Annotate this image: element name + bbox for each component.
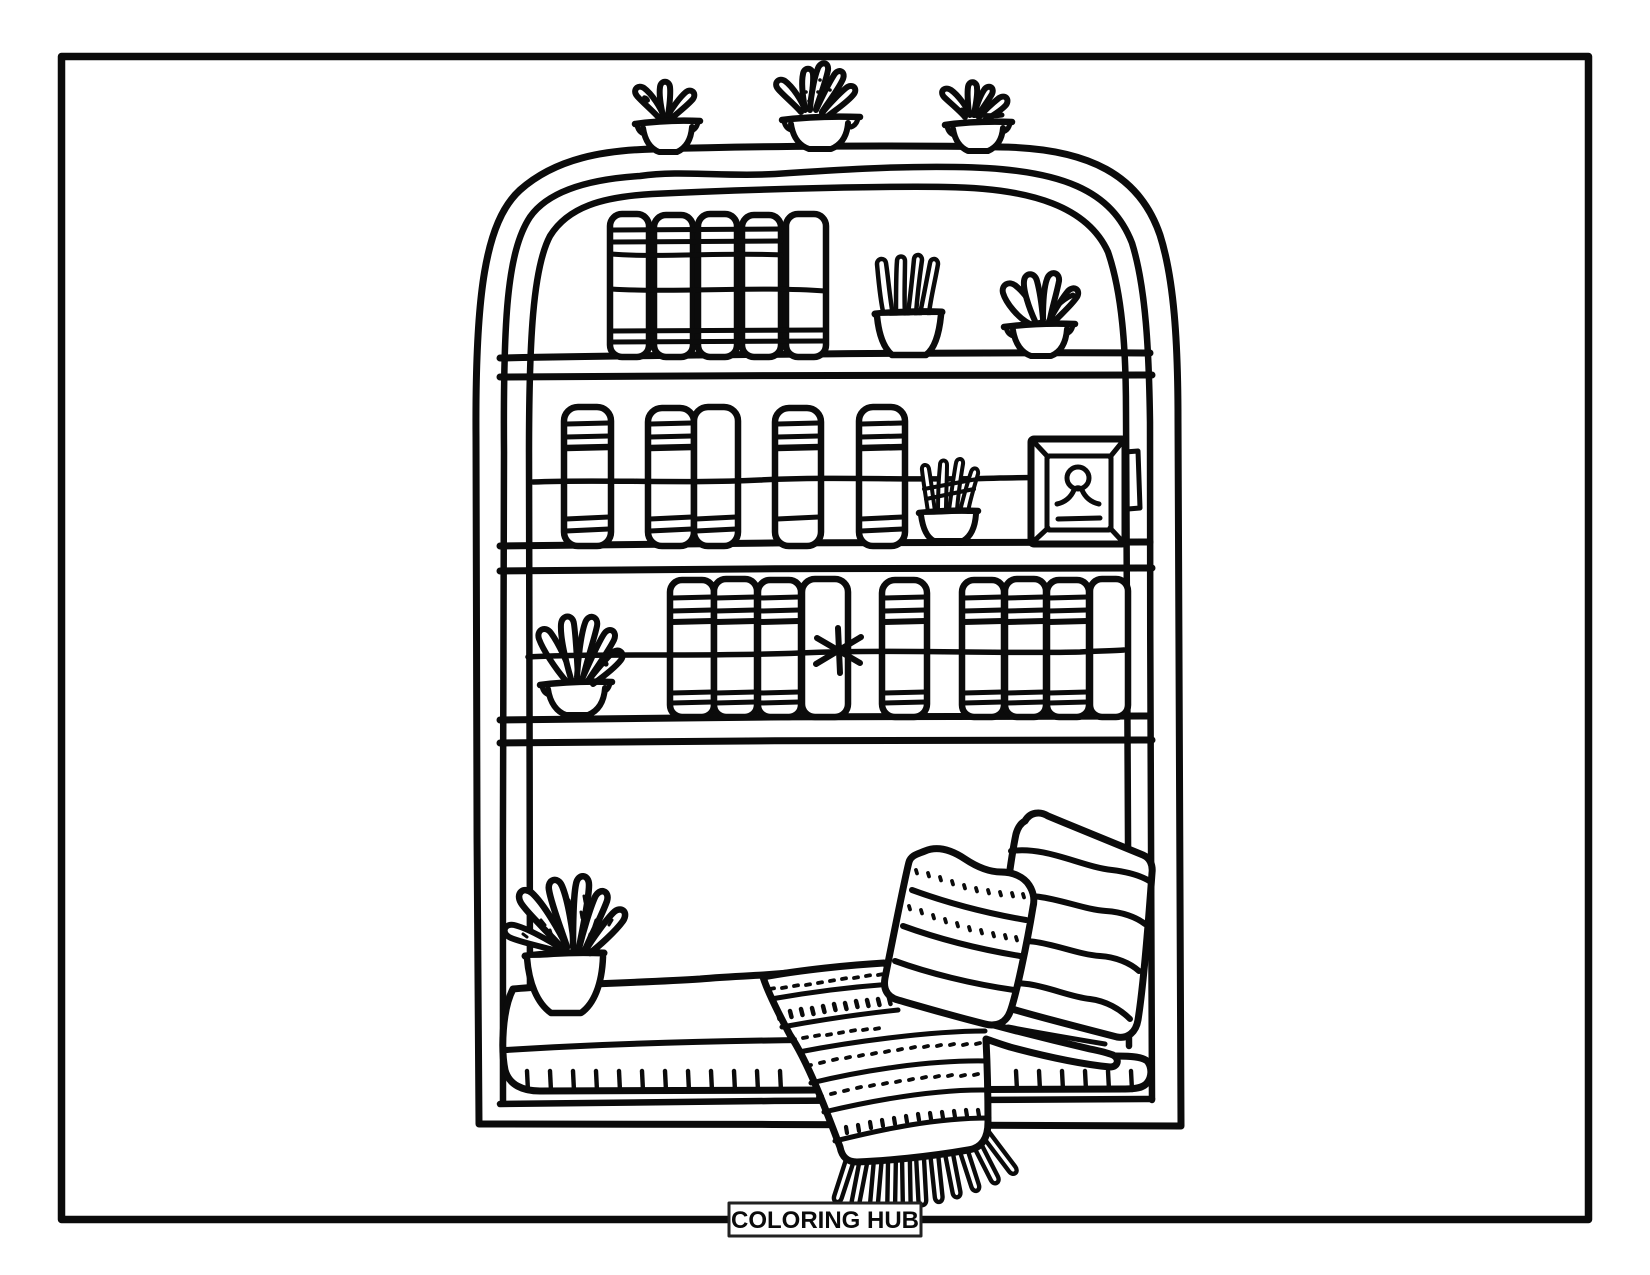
svg-text:COLORING HUB: COLORING HUB <box>731 1207 919 1234</box>
